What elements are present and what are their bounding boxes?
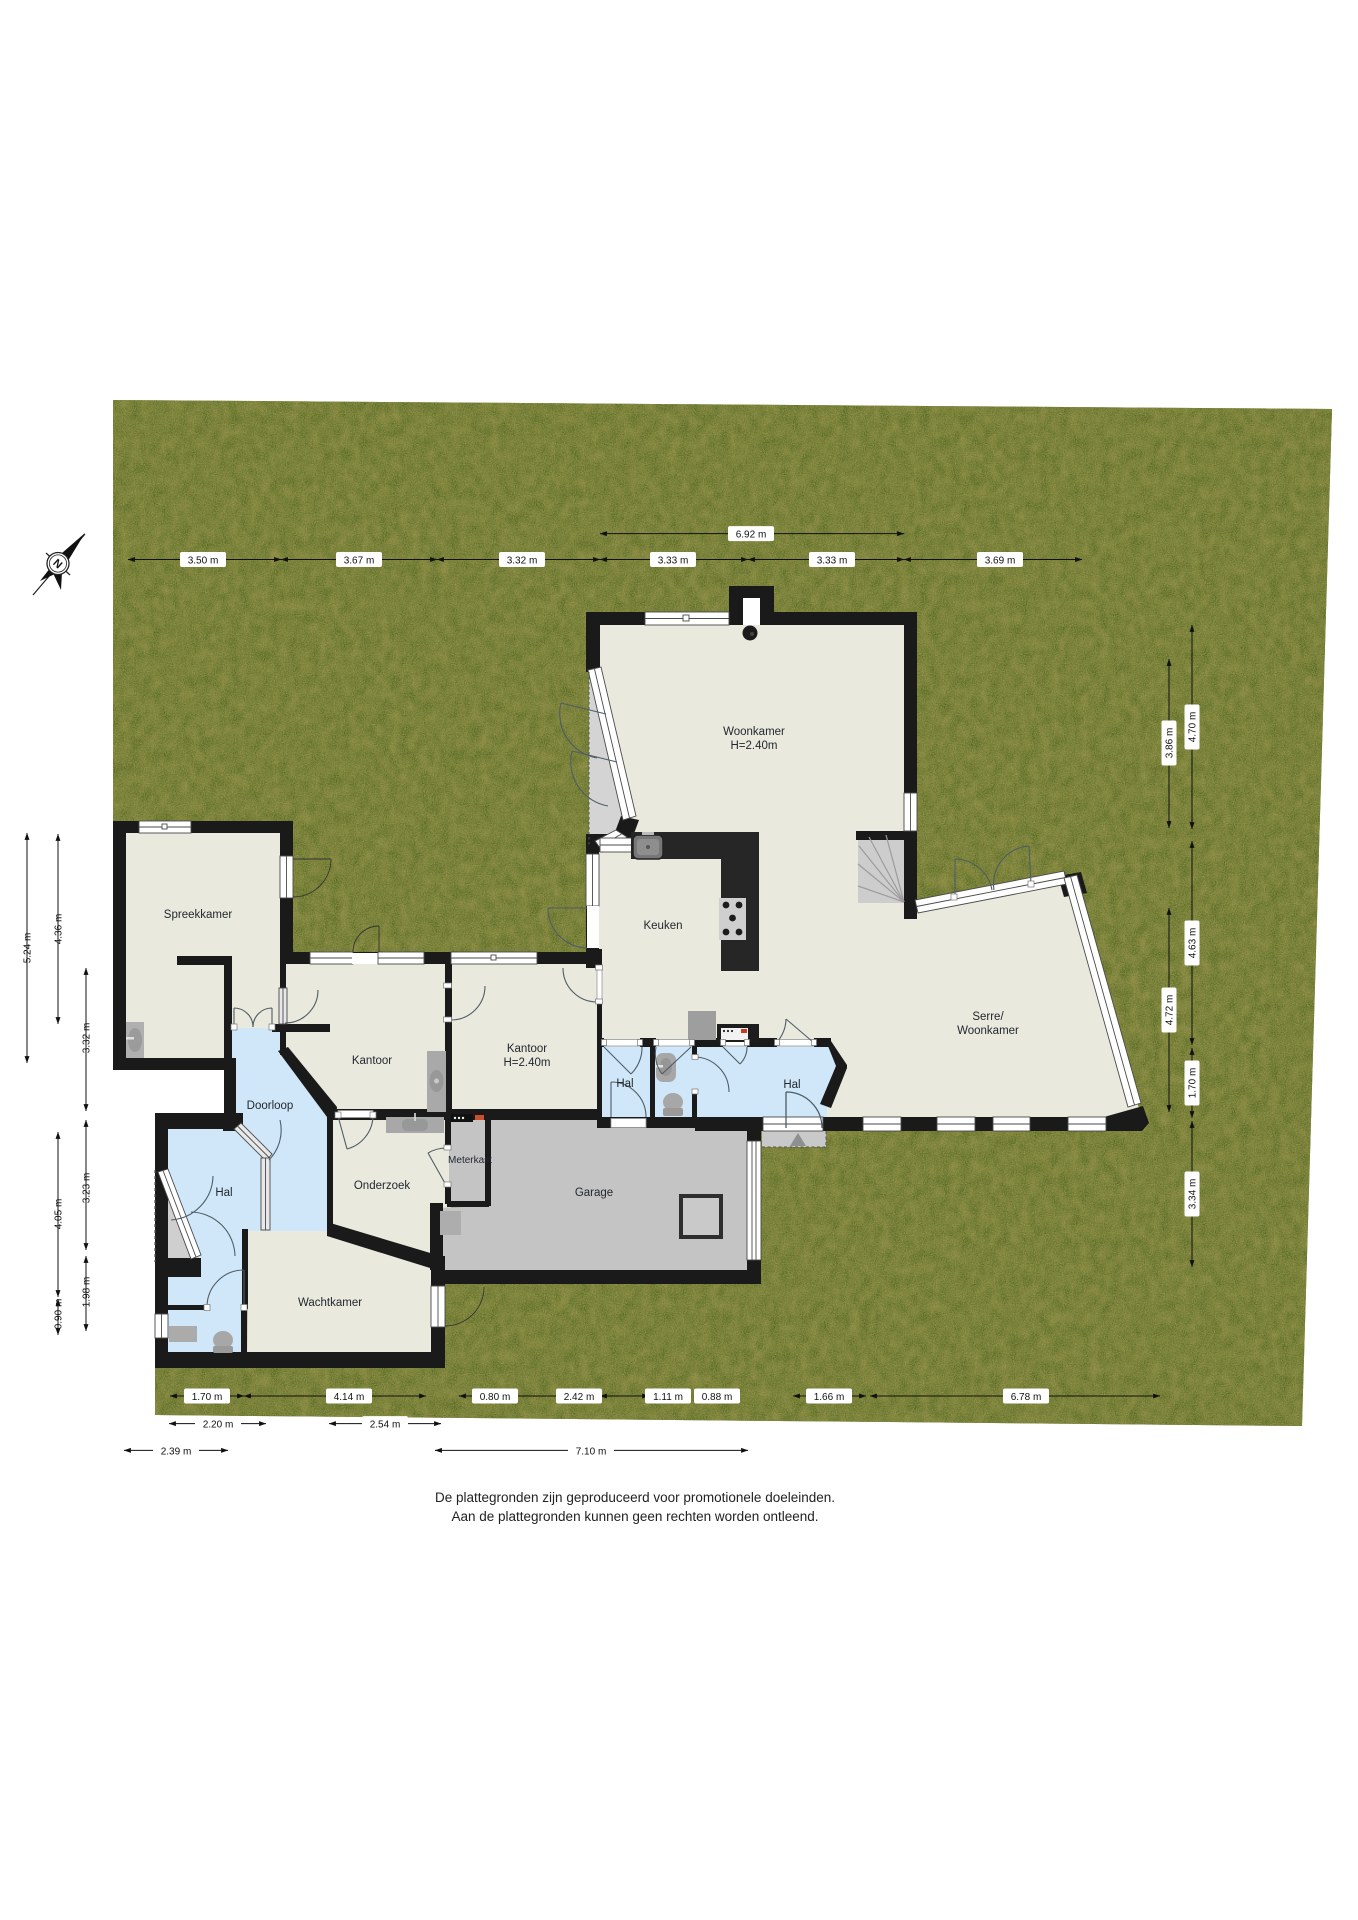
svg-text:4.05 m: 4.05 m bbox=[54, 1199, 65, 1230]
svg-text:0.90 m: 0.90 m bbox=[54, 1299, 65, 1330]
svg-text:H=2.40m: H=2.40m bbox=[504, 1057, 551, 1069]
svg-text:3.23 m: 3.23 m bbox=[82, 1173, 93, 1204]
svg-text:4.36 m: 4.36 m bbox=[54, 914, 65, 945]
svg-text:3.86 m: 3.86 m bbox=[1165, 728, 1176, 759]
svg-text:Hal: Hal bbox=[783, 1079, 800, 1091]
svg-text:4.14 m: 4.14 m bbox=[334, 1392, 365, 1403]
svg-text:H=2.40m: H=2.40m bbox=[731, 740, 778, 752]
svg-text:3.33 m: 3.33 m bbox=[658, 556, 689, 567]
svg-text:1.98 m: 1.98 m bbox=[82, 1277, 93, 1308]
svg-text:Meterkast: Meterkast bbox=[448, 1155, 492, 1166]
svg-text:Spreekkamer: Spreekkamer bbox=[164, 909, 233, 921]
svg-text:7.10 m: 7.10 m bbox=[576, 1446, 607, 1457]
svg-text:Aan de plattegronden kunnen ge: Aan de plattegronden kunnen geen rechten… bbox=[451, 1509, 818, 1524]
svg-text:4.72 m: 4.72 m bbox=[1165, 995, 1176, 1026]
svg-text:2.54 m: 2.54 m bbox=[370, 1420, 401, 1431]
svg-text:3.67 m: 3.67 m bbox=[344, 556, 375, 567]
svg-text:Woonkamer: Woonkamer bbox=[957, 1025, 1019, 1037]
svg-text:3.32 m: 3.32 m bbox=[82, 1023, 93, 1054]
svg-text:2.39 m: 2.39 m bbox=[161, 1446, 192, 1457]
svg-text:Keuken: Keuken bbox=[643, 920, 682, 932]
svg-text:6.78 m: 6.78 m bbox=[1011, 1392, 1042, 1403]
svg-text:Woonkamer: Woonkamer bbox=[723, 726, 785, 738]
svg-text:Kantoor: Kantoor bbox=[507, 1043, 547, 1055]
svg-text:1.11 m: 1.11 m bbox=[653, 1392, 683, 1403]
svg-text:3.34 m: 3.34 m bbox=[1188, 1179, 1199, 1210]
svg-text:Hal: Hal bbox=[215, 1187, 232, 1199]
svg-text:6.92 m: 6.92 m bbox=[736, 530, 767, 541]
svg-text:3.69 m: 3.69 m bbox=[985, 556, 1016, 567]
svg-text:Onderzoek: Onderzoek bbox=[354, 1180, 411, 1192]
svg-text:Serre/: Serre/ bbox=[972, 1011, 1004, 1023]
svg-text:1.66 m: 1.66 m bbox=[814, 1392, 845, 1403]
svg-text:Wachtkamer: Wachtkamer bbox=[298, 1297, 362, 1309]
svg-text:5.24 m: 5.24 m bbox=[23, 933, 34, 964]
svg-text:4.63 m: 4.63 m bbox=[1188, 928, 1199, 959]
svg-text:1.70 m: 1.70 m bbox=[192, 1392, 223, 1403]
svg-text:1.70 m: 1.70 m bbox=[1188, 1068, 1199, 1099]
svg-text:2.20 m: 2.20 m bbox=[203, 1420, 234, 1431]
svg-text:3.33 m: 3.33 m bbox=[817, 556, 848, 567]
svg-text:Garage: Garage bbox=[575, 1187, 613, 1199]
svg-text:Doorloop: Doorloop bbox=[247, 1100, 294, 1112]
svg-text:3.50 m: 3.50 m bbox=[188, 556, 219, 567]
svg-text:0.80 m: 0.80 m bbox=[480, 1392, 511, 1403]
svg-text:Hal: Hal bbox=[616, 1078, 633, 1090]
svg-text:Kantoor: Kantoor bbox=[352, 1055, 392, 1067]
svg-text:0.88 m: 0.88 m bbox=[702, 1392, 733, 1403]
svg-text:4.70 m: 4.70 m bbox=[1188, 712, 1199, 743]
svg-text:2.42 m: 2.42 m bbox=[564, 1392, 595, 1403]
svg-text:De plattegronden zijn geproduc: De plattegronden zijn geproduceerd voor … bbox=[435, 1490, 835, 1505]
svg-text:3.32 m: 3.32 m bbox=[507, 556, 538, 567]
